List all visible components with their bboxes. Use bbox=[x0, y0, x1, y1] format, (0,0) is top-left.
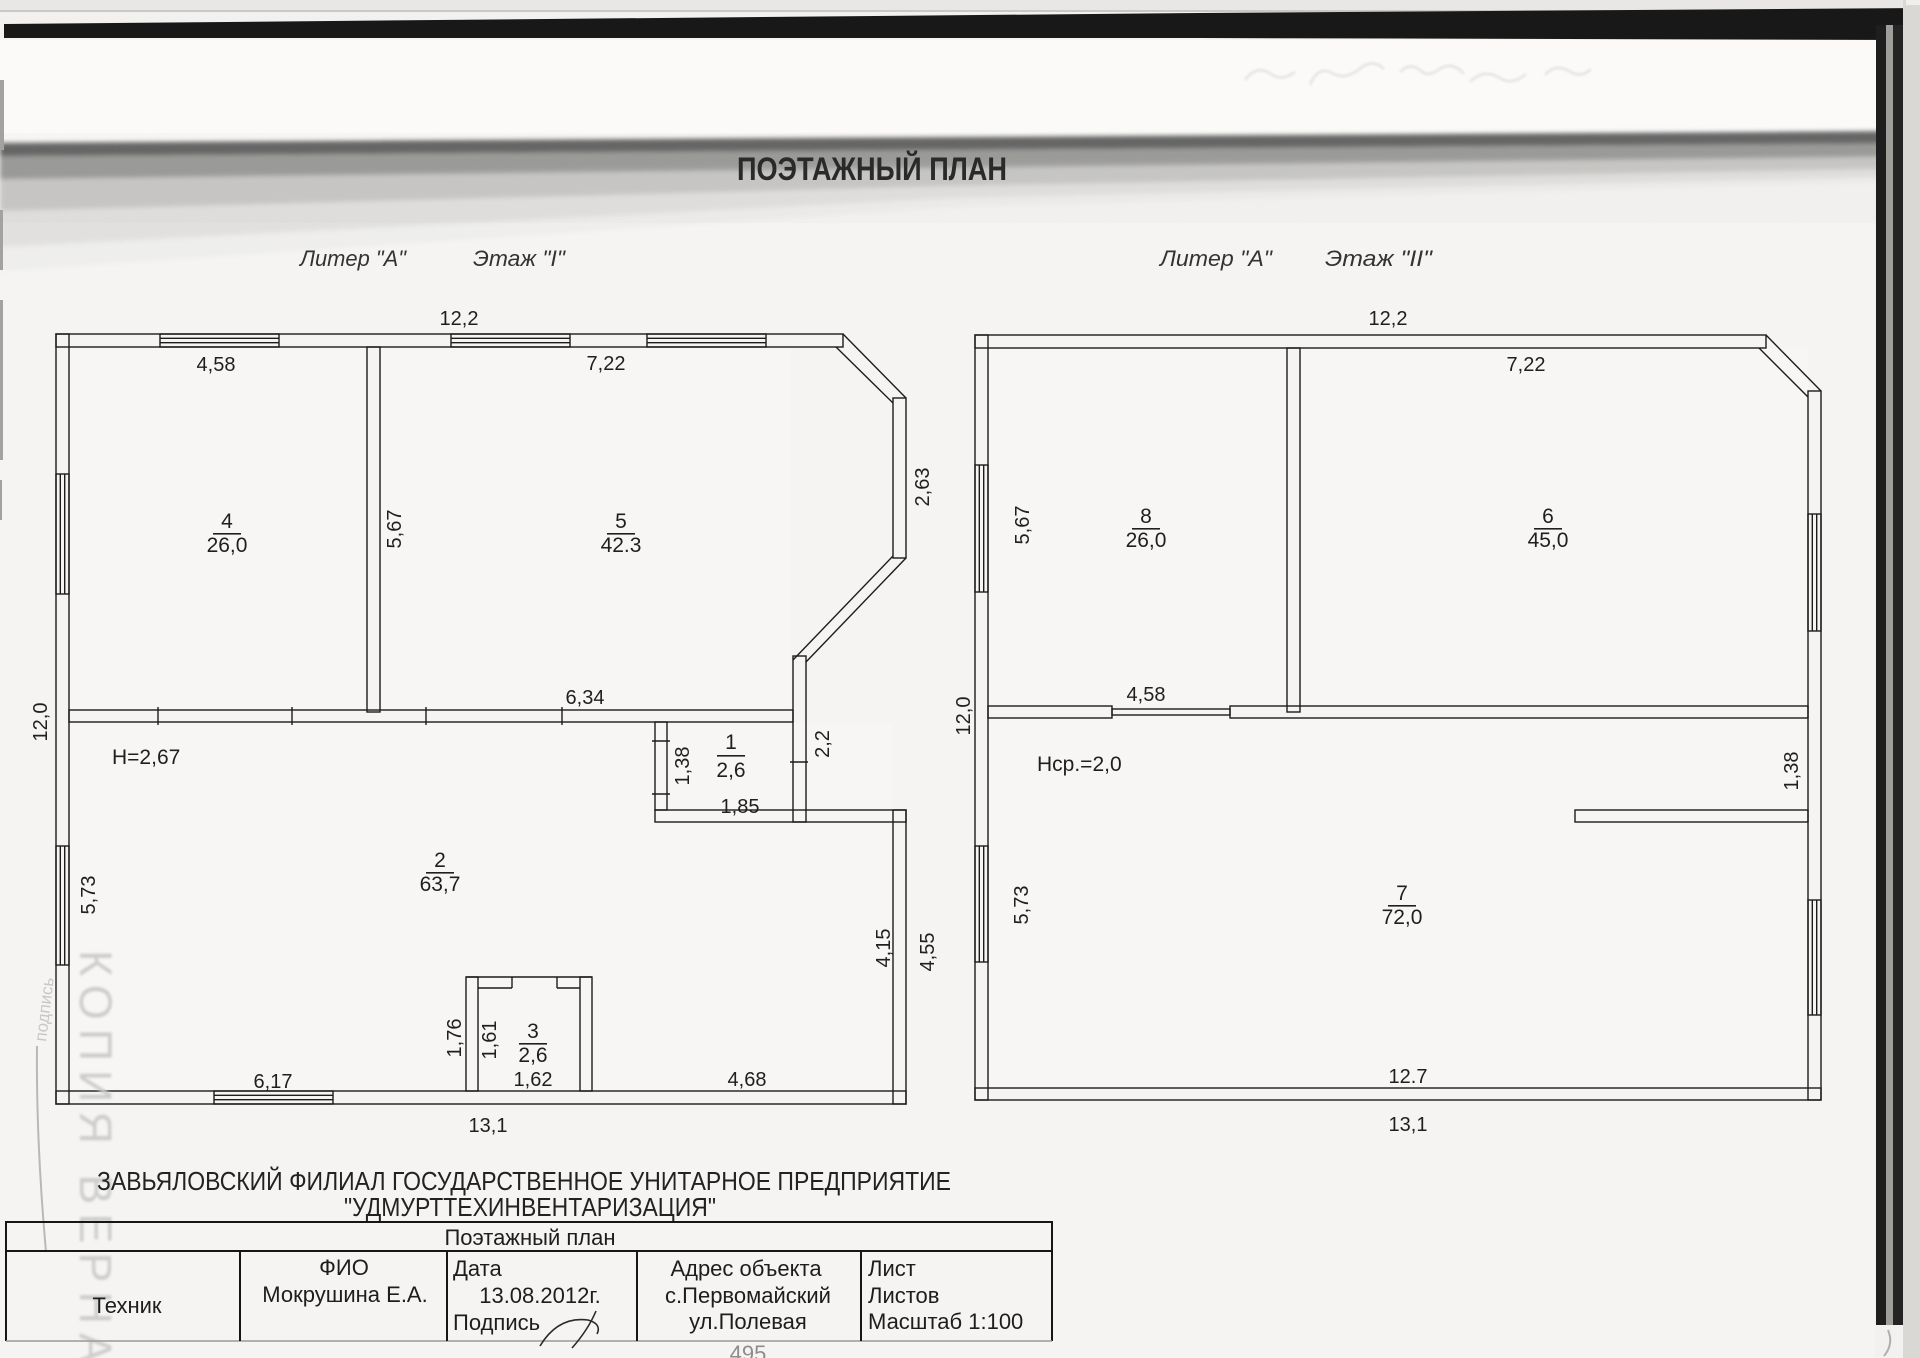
svg-text:Масштаб 1:100: Масштаб 1:100 bbox=[868, 1309, 1023, 1334]
svg-text:Листов: Листов bbox=[868, 1283, 939, 1308]
svg-text:ПОЭТАЖНЫЙ ПЛАН: ПОЭТАЖНЫЙ ПЛАН bbox=[737, 151, 1007, 187]
svg-text:Мокрушина Е.А.: Мокрушина Е.А. bbox=[262, 1282, 427, 1307]
svg-text:72,0: 72,0 bbox=[1382, 906, 1423, 929]
svg-text:7: 7 bbox=[1396, 882, 1408, 905]
svg-text:3: 3 bbox=[527, 1020, 539, 1043]
svg-text:4,15: 4,15 bbox=[873, 929, 895, 968]
svg-text:12,0: 12,0 bbox=[953, 697, 975, 736]
svg-text:2,2: 2,2 bbox=[812, 730, 834, 758]
svg-text:63,7: 63,7 bbox=[420, 873, 461, 896]
svg-text:12,0: 12,0 bbox=[30, 703, 52, 742]
svg-text:42.3: 42.3 bbox=[601, 534, 642, 557]
svg-text:2,6: 2,6 bbox=[716, 759, 745, 782]
svg-text:4,58: 4,58 bbox=[1127, 684, 1166, 706]
svg-text:Лист: Лист bbox=[868, 1256, 916, 1281]
svg-text:Литер "А": Литер "А" bbox=[298, 246, 407, 271]
svg-text:2: 2 bbox=[434, 849, 446, 872]
svg-text:5: 5 bbox=[615, 510, 627, 533]
svg-text:1,61: 1,61 bbox=[479, 1021, 501, 1060]
svg-text:5,67: 5,67 bbox=[384, 510, 406, 549]
svg-text:2,63: 2,63 bbox=[912, 468, 934, 507]
svg-text:Поэтажный план: Поэтажный план bbox=[444, 1225, 615, 1250]
svg-text:1,38: 1,38 bbox=[1781, 752, 1803, 791]
svg-text:8: 8 bbox=[1140, 505, 1152, 528]
svg-text:13,1: 13,1 bbox=[1389, 1114, 1428, 1136]
svg-text:5,73: 5,73 bbox=[1011, 886, 1033, 925]
svg-text:12,2: 12,2 bbox=[440, 308, 479, 330]
svg-text:12,2: 12,2 bbox=[1369, 308, 1408, 330]
svg-text:6,34: 6,34 bbox=[566, 687, 605, 709]
svg-text:1,62: 1,62 bbox=[514, 1069, 553, 1091]
svg-text:7,22: 7,22 bbox=[1507, 354, 1546, 376]
svg-text:Техник: Техник bbox=[92, 1293, 161, 1318]
svg-text:6: 6 bbox=[1542, 505, 1554, 528]
svg-text:6,17: 6,17 bbox=[254, 1071, 293, 1093]
svg-text:12.7: 12.7 bbox=[1389, 1066, 1428, 1088]
svg-text:Адрес объекта: Адрес объекта bbox=[670, 1256, 822, 1281]
svg-text:4,68: 4,68 bbox=[728, 1069, 767, 1091]
svg-text:Нср.=2,0: Нср.=2,0 bbox=[1037, 753, 1122, 776]
svg-text:4,58: 4,58 bbox=[197, 354, 236, 376]
svg-text:1,85: 1,85 bbox=[721, 796, 760, 818]
svg-text:1,38: 1,38 bbox=[672, 747, 694, 786]
svg-text:Этаж "I": Этаж "I" bbox=[473, 246, 566, 271]
svg-text:2,6: 2,6 bbox=[518, 1044, 547, 1067]
svg-text:13,1: 13,1 bbox=[469, 1115, 508, 1137]
svg-text:26,0: 26,0 bbox=[207, 534, 248, 557]
svg-text:495: 495 bbox=[730, 1341, 767, 1358]
svg-text:с.Первомайский: с.Первомайский bbox=[665, 1283, 831, 1308]
svg-text:4: 4 bbox=[221, 510, 233, 533]
svg-text:7,22: 7,22 bbox=[587, 353, 626, 375]
svg-text:Подпись: Подпись bbox=[453, 1310, 540, 1335]
svg-text:ул.Полевая: ул.Полевая bbox=[689, 1309, 807, 1334]
svg-text:5,67: 5,67 bbox=[1012, 506, 1034, 545]
svg-text:Дата: Дата bbox=[453, 1256, 502, 1281]
svg-text:H=2,67: H=2,67 bbox=[112, 746, 180, 769]
svg-text:1,76: 1,76 bbox=[444, 1019, 466, 1058]
svg-text:Этаж "II": Этаж "II" bbox=[1325, 246, 1433, 271]
svg-text:13.08.2012г.: 13.08.2012г. bbox=[479, 1283, 601, 1308]
svg-text:1: 1 bbox=[725, 731, 737, 754]
svg-text:45,0: 45,0 bbox=[1528, 529, 1569, 552]
svg-text:Литер "А": Литер "А" bbox=[1158, 246, 1273, 271]
svg-text:26,0: 26,0 bbox=[1126, 529, 1167, 552]
svg-text:4,55: 4,55 bbox=[917, 933, 939, 972]
svg-text:"УДМУРТТЕХИНВЕНТАРИЗАЦИЯ": "УДМУРТТЕХИНВЕНТАРИЗАЦИЯ" bbox=[344, 1192, 716, 1222]
svg-text:ФИО: ФИО bbox=[319, 1255, 369, 1280]
svg-text:5,73: 5,73 bbox=[78, 876, 100, 915]
